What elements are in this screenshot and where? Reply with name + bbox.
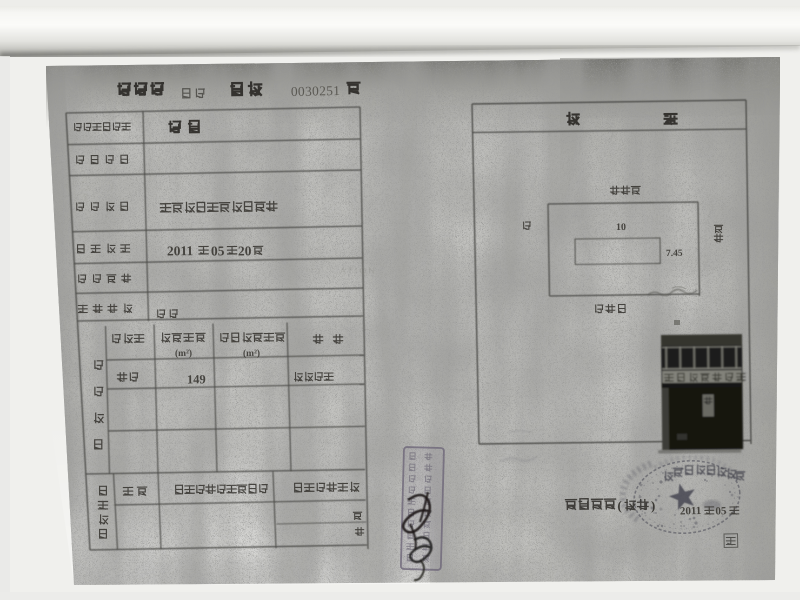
- svg-text:2011: 2011: [167, 243, 194, 258]
- svg-text:149: 149: [187, 372, 206, 386]
- svg-text:05: 05: [715, 505, 727, 517]
- svg-text:): ): [651, 498, 656, 513]
- svg-text:05: 05: [211, 243, 225, 258]
- svg-text:7.45: 7.45: [666, 249, 683, 259]
- svg-text:ATION: ATION: [340, 266, 377, 276]
- svg-text:20: 20: [238, 243, 252, 258]
- svg-text:(: (: [617, 498, 622, 513]
- svg-text:(m²): (m²): [243, 348, 260, 359]
- svg-text:2011: 2011: [680, 505, 702, 518]
- svg-text:0030251: 0030251: [291, 83, 341, 99]
- svg-text:(m²): (m²): [175, 348, 192, 359]
- svg-text:10: 10: [616, 222, 626, 233]
